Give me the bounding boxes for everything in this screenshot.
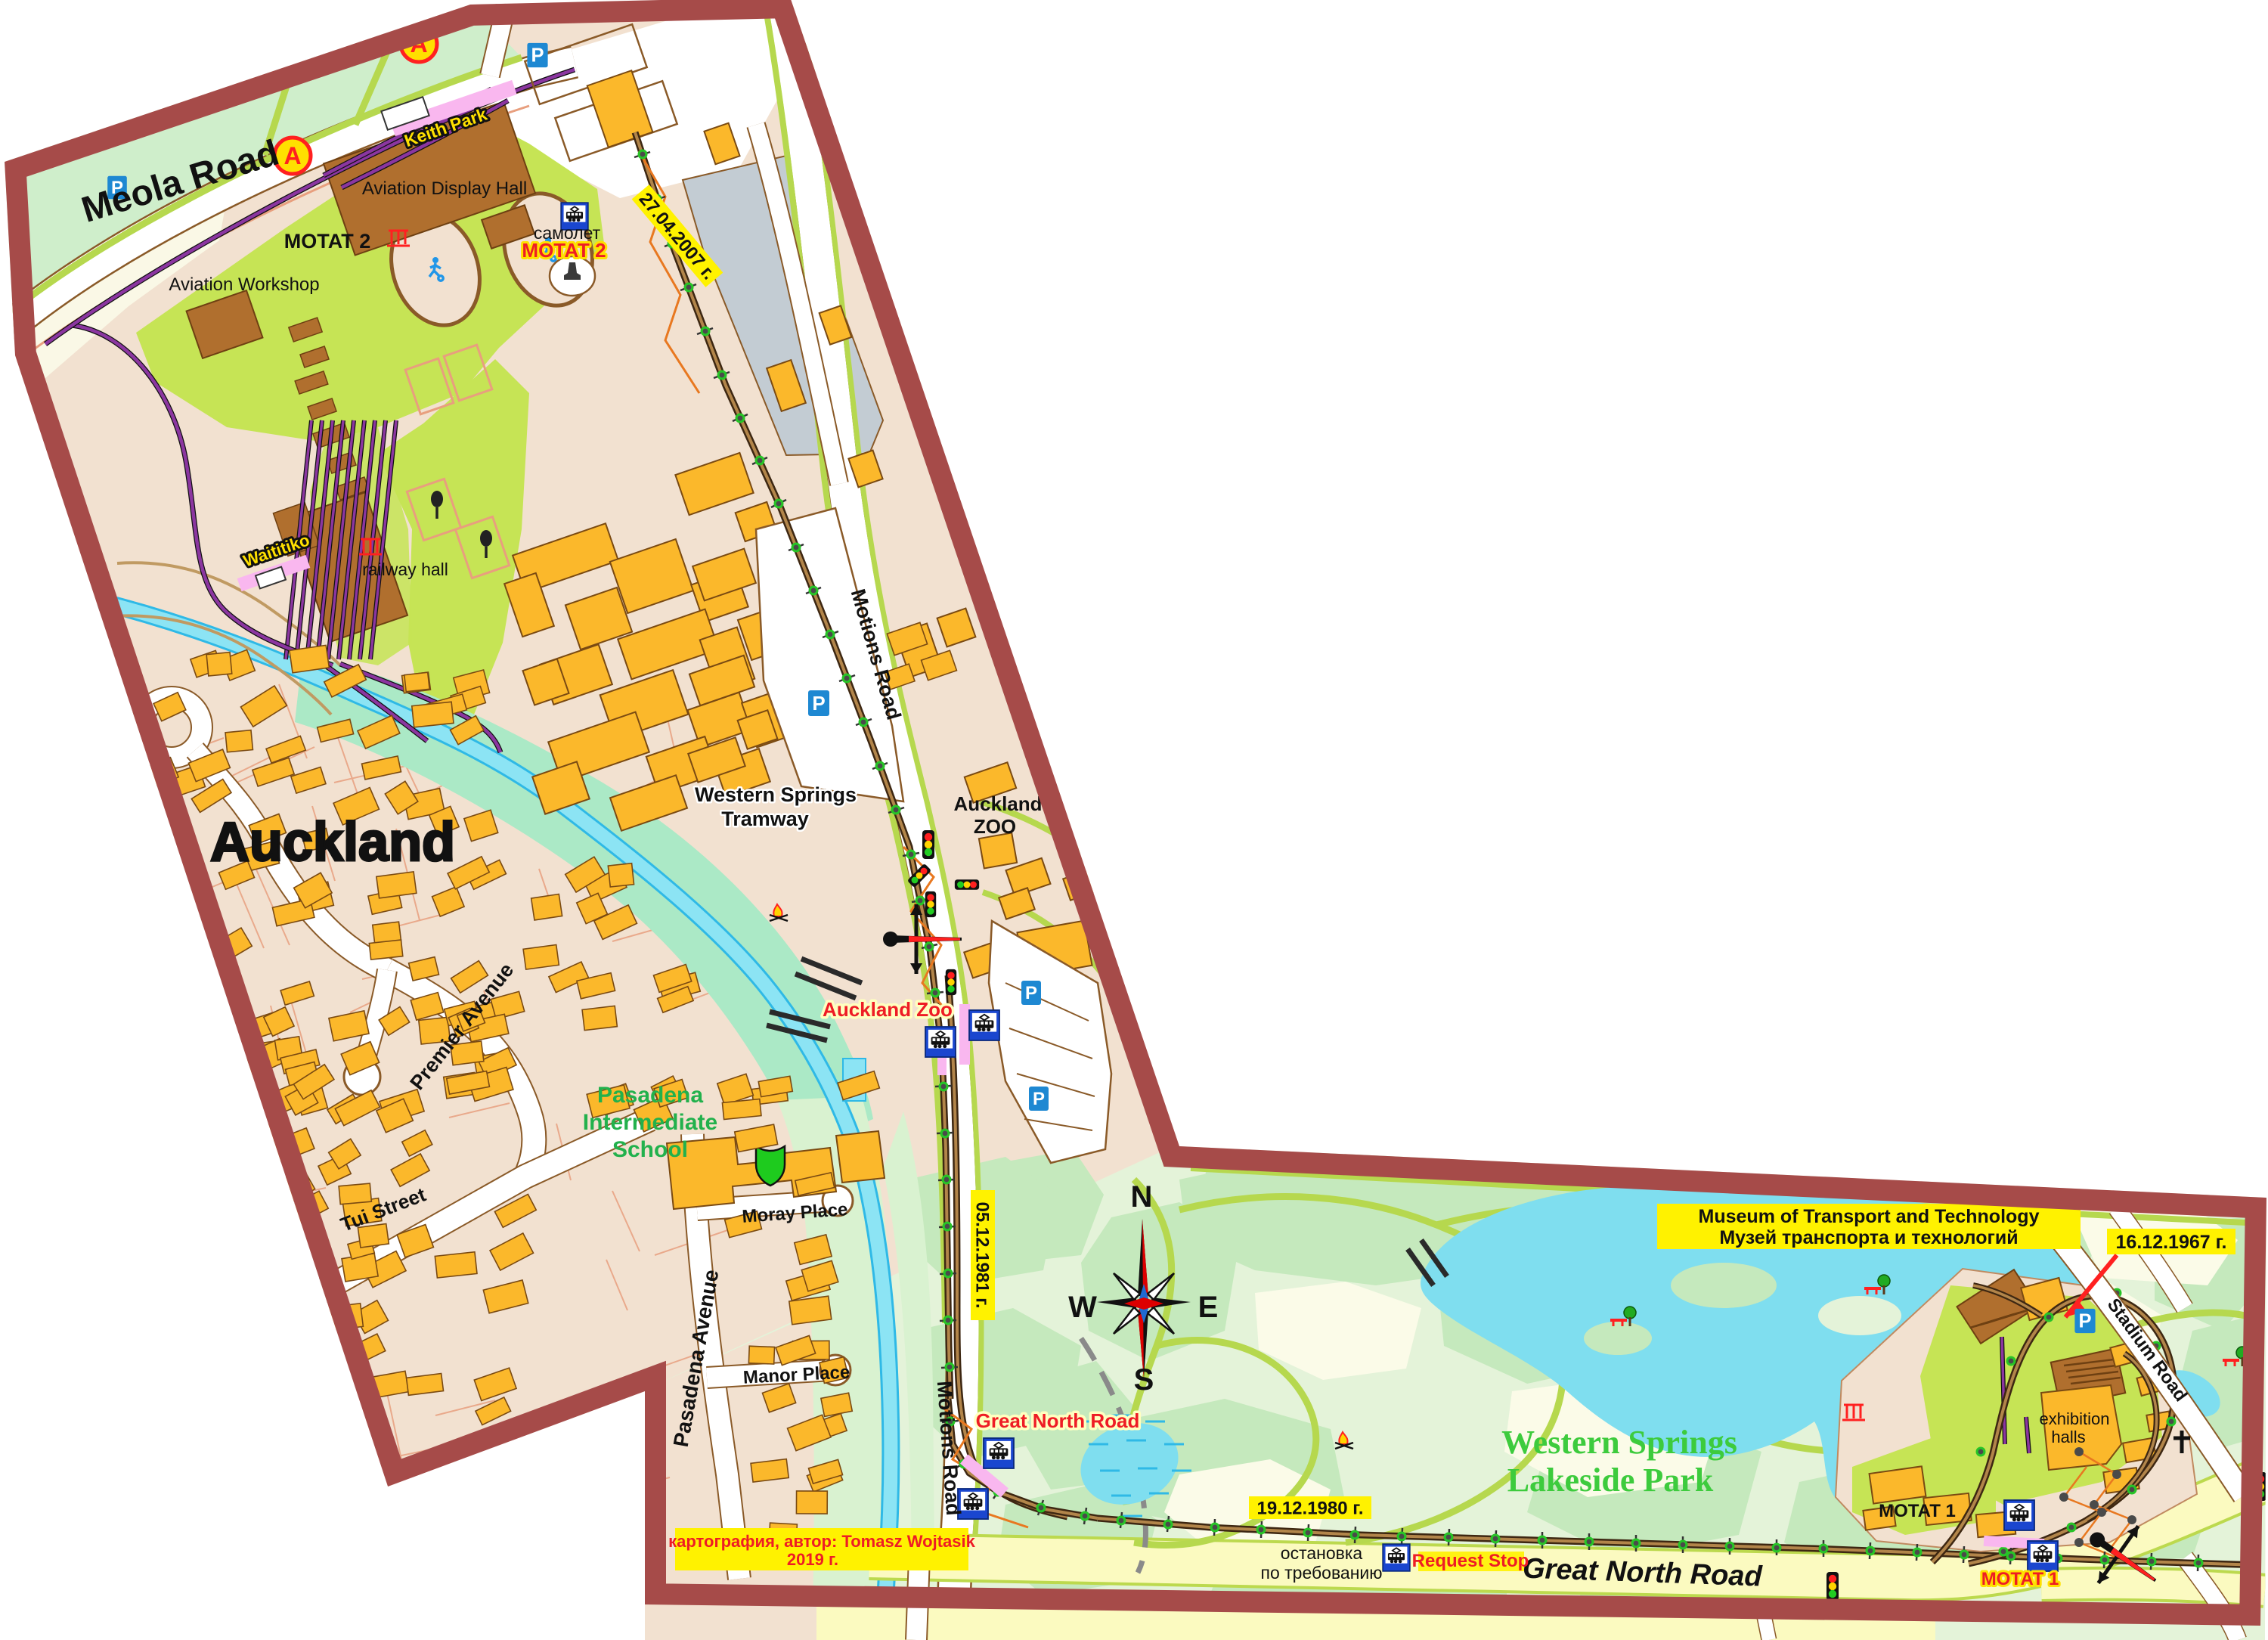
svg-text:railway hall: railway hall — [362, 560, 448, 579]
svg-text:Museum of Transport and Techno: Museum of Transport and Technology — [1699, 1206, 2040, 1227]
svg-text:Pasadena: Pasadena — [597, 1083, 703, 1108]
svg-text:05.12.1981 г.: 05.12.1981 г. — [972, 1201, 993, 1308]
svg-text:Western Springs: Western Springs — [695, 783, 857, 806]
svg-text:19.12.1980 г.: 19.12.1980 г. — [1256, 1498, 1363, 1518]
svg-text:E: E — [1198, 1291, 1219, 1324]
svg-text:Музей транспорта и технологий: Музей транспорта и технологий — [1719, 1227, 2018, 1248]
svg-text:Auckland: Auckland — [210, 812, 455, 873]
svg-text:Great North Road: Great North Road — [976, 1409, 1140, 1432]
svg-text:School: School — [612, 1137, 688, 1162]
svg-text:P: P — [531, 45, 544, 67]
svg-text:самолет: самолет — [534, 223, 601, 243]
svg-text:по требованию: по требованию — [1260, 1563, 1382, 1583]
svg-text:Intermediate: Intermediate — [583, 1110, 717, 1135]
svg-text:W: W — [1068, 1291, 1097, 1324]
svg-text:Tramway: Tramway — [721, 808, 809, 830]
svg-text:A: A — [283, 142, 301, 169]
svg-text:Aviation Workshop: Aviation Workshop — [169, 274, 319, 295]
svg-text:Aviation Display Hall: Aviation Display Hall — [362, 178, 527, 199]
svg-text:MOTAT 1: MOTAT 1 — [1879, 1501, 1956, 1521]
svg-text:N: N — [1131, 1180, 1153, 1214]
svg-text:P: P — [812, 692, 825, 715]
svg-text:Request Stop: Request Stop — [1412, 1551, 1529, 1571]
svg-text:halls: halls — [2051, 1428, 2085, 1446]
svg-text:Lakeside Park: Lakeside Park — [1507, 1462, 1714, 1499]
svg-text:Western Springs: Western Springs — [1501, 1424, 1737, 1461]
svg-text:MOTAT 2: MOTAT 2 — [284, 230, 371, 253]
svg-text:P: P — [1033, 1089, 1045, 1109]
svg-text:P: P — [2078, 1311, 2091, 1332]
svg-text:2019 г.: 2019 г. — [787, 1550, 838, 1569]
svg-text:картография, автор: Tomasz Woj: картография, автор: Tomasz Wojtasik — [668, 1532, 975, 1551]
svg-text:P: P — [1025, 983, 1037, 1003]
svg-text:S: S — [1134, 1363, 1154, 1397]
svg-text:Auckland: Auckland — [953, 792, 1042, 815]
svg-text:exhibition: exhibition — [2040, 1409, 2110, 1428]
svg-text:16.12.1967 г.: 16.12.1967 г. — [2116, 1232, 2227, 1253]
svg-text:ZOO: ZOO — [974, 815, 1016, 838]
svg-text:остановка: остановка — [1281, 1543, 1363, 1563]
svg-text:Auckland Zoo: Auckland Zoo — [823, 998, 953, 1021]
svg-text:МОТАТ 1: МОТАТ 1 — [1981, 1569, 2059, 1589]
